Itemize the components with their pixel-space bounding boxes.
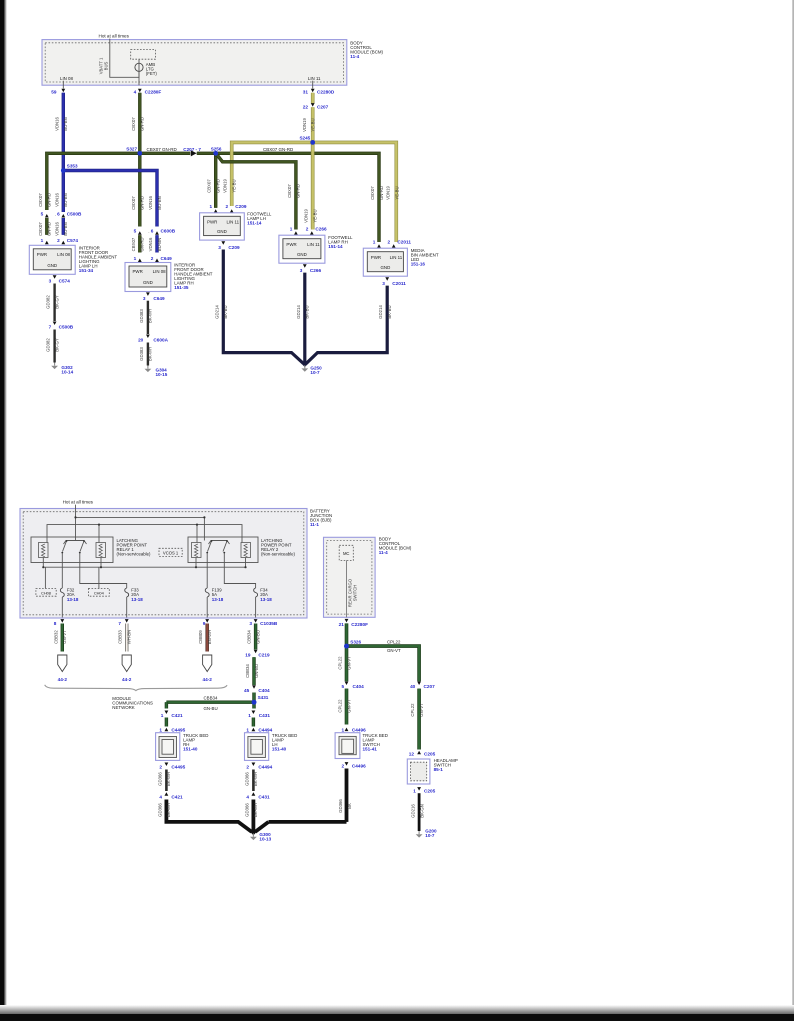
svg-text:2: 2: [151, 256, 154, 261]
svg-text:C431: C431: [258, 794, 270, 799]
svg-text:S327: S327: [126, 147, 137, 152]
svg-text:CBX07: CBX07: [38, 222, 43, 236]
svg-text:2: 2: [57, 238, 60, 243]
svg-text:1: 1: [413, 788, 416, 793]
svg-text:C2280D: C2280D: [317, 89, 335, 94]
svg-text:2: 2: [246, 764, 249, 769]
svg-text:BK-WH: BK-WH: [148, 347, 153, 361]
svg-text:CBX07 GN-RD: CBX07 GN-RD: [263, 147, 294, 152]
svg-text:GD383: GD383: [139, 309, 144, 323]
svg-text:C404: C404: [258, 688, 270, 693]
svg-text:5: 5: [41, 211, 44, 216]
svg-text:C649: C649: [153, 296, 165, 301]
svg-text:LIN 11: LIN 11: [307, 242, 320, 247]
svg-text:6: 6: [57, 211, 60, 216]
svg-text:C4495: C4495: [171, 764, 185, 769]
svg-text:2: 2: [159, 764, 162, 769]
svg-text:59: 59: [51, 89, 57, 94]
svg-text:PWR: PWR: [133, 269, 143, 274]
svg-text:C207: C207: [424, 684, 436, 689]
svg-text:BK-BU: BK-BU: [223, 305, 228, 318]
svg-text:10-7: 10-7: [310, 370, 320, 375]
svg-text:31: 31: [303, 89, 309, 94]
svg-text:GND: GND: [381, 265, 391, 270]
svg-text:PWR: PWR: [37, 252, 47, 257]
svg-text:11-4: 11-4: [379, 550, 388, 555]
svg-text:GND: GND: [47, 263, 57, 268]
svg-text:C2280F: C2280F: [351, 622, 368, 627]
svg-text:1: 1: [159, 727, 162, 732]
svg-text:CBB34: CBB34: [204, 695, 218, 700]
svg-text:13-18: 13-18: [212, 597, 224, 602]
svg-text:S245: S245: [299, 136, 310, 141]
svg-text:GN-RD: GN-RD: [47, 193, 52, 207]
svg-text:GD214: GD214: [378, 305, 383, 319]
svg-text:GN-VT: GN-VT: [346, 656, 351, 670]
svg-text:S431: S431: [258, 695, 269, 700]
svg-text:Hot at all times: Hot at all times: [99, 34, 130, 39]
svg-text:GD382: GD382: [46, 295, 51, 309]
svg-text:LIN 08: LIN 08: [153, 269, 166, 274]
svg-text:C431: C431: [259, 713, 271, 718]
svg-text:13-18: 13-18: [67, 597, 79, 602]
svg-text:BK-BU: BK-BU: [387, 305, 392, 318]
svg-text:GN-RD: GN-RD: [140, 117, 145, 131]
svg-text:YE-BU: YE-BU: [394, 186, 399, 199]
svg-text:CBX07: CBX07: [287, 184, 292, 198]
svg-text:C4496: C4496: [352, 727, 366, 732]
svg-text:GD214: GD214: [296, 305, 301, 319]
svg-text:VDN16: VDN16: [54, 116, 59, 130]
svg-text:C421: C421: [171, 713, 183, 718]
svg-text:151-14: 151-14: [247, 221, 262, 226]
svg-text:40: 40: [410, 684, 416, 689]
svg-text:1: 1: [246, 727, 249, 732]
svg-text:GN-RD: GN-RD: [296, 184, 301, 198]
svg-text:C404: C404: [353, 684, 365, 689]
svg-text:C207 - 7: C207 - 7: [183, 147, 201, 152]
svg-text:45: 45: [244, 688, 250, 693]
svg-text:VDN16: VDN16: [148, 237, 153, 251]
svg-text:BU-BN: BU-BN: [63, 222, 68, 235]
svg-text:2: 2: [341, 763, 344, 768]
svg-text:CBB34: CBB34: [245, 664, 250, 678]
svg-text:CBX07: CBX07: [131, 117, 136, 131]
svg-text:GN-RD: GN-RD: [47, 222, 52, 236]
svg-text:PWR: PWR: [286, 242, 296, 247]
svg-text:GND: GND: [217, 229, 227, 234]
svg-text:C219: C219: [258, 652, 270, 657]
svg-text:151-41: 151-41: [363, 747, 378, 752]
svg-text:C209: C209: [235, 204, 247, 209]
svg-text:YE-BU: YE-BU: [313, 209, 318, 222]
svg-text:CPL22: CPL22: [338, 699, 343, 713]
svg-text:2: 2: [387, 239, 390, 244]
svg-text:C574: C574: [67, 238, 79, 243]
svg-text:GN-RD: GN-RD: [216, 179, 221, 193]
svg-text:10-7: 10-7: [425, 833, 435, 838]
svg-text:VDN19: VDN19: [302, 117, 307, 131]
svg-text:Hot at all times: Hot at all times: [63, 500, 94, 505]
svg-text:CBB09: CBB09: [198, 630, 203, 644]
svg-text:21: 21: [339, 622, 345, 627]
svg-text:151-14: 151-14: [328, 244, 343, 249]
svg-text:VDN19: VDN19: [304, 208, 309, 222]
svg-text:GN-VT: GN-VT: [387, 648, 401, 653]
svg-text:GN-BU: GN-BU: [204, 706, 218, 711]
svg-text:85-1: 85-1: [434, 767, 444, 772]
svg-text:BK-GN: BK-GN: [419, 804, 424, 818]
svg-text:CBX07: CBX07: [131, 237, 136, 251]
svg-text:BU-BN: BU-BN: [157, 196, 162, 209]
svg-text:BK-GY: BK-GY: [54, 295, 59, 309]
svg-text:GD366: GD366: [157, 803, 162, 817]
svg-text:VDN16: VDN16: [54, 221, 59, 235]
svg-text:VDN16: VDN16: [148, 195, 153, 209]
svg-text:12: 12: [409, 751, 415, 756]
svg-text:7: 7: [49, 325, 52, 330]
svg-text:BU-BN: BU-BN: [63, 117, 68, 130]
svg-text:3: 3: [382, 281, 385, 286]
svg-text:C205: C205: [424, 788, 436, 793]
svg-text:3: 3: [300, 268, 303, 273]
svg-text:GN-RD: GN-RD: [379, 186, 384, 200]
svg-text:3: 3: [143, 296, 146, 301]
svg-text:C4496: C4496: [352, 763, 366, 768]
svg-text:10-13: 10-13: [259, 837, 271, 842]
svg-text:VCOS 1: VCOS 1: [163, 551, 179, 556]
svg-text:1: 1: [161, 713, 164, 718]
svg-text:1: 1: [209, 204, 212, 209]
svg-text:4: 4: [134, 89, 137, 94]
svg-text:C4494: C4494: [258, 764, 272, 769]
svg-text:C421: C421: [171, 794, 183, 799]
svg-text:(FET): (FET): [146, 71, 158, 76]
svg-text:20: 20: [138, 338, 144, 343]
svg-text:CBX07: CBX07: [38, 193, 43, 207]
svg-text:11-4: 11-4: [350, 54, 359, 59]
svg-text:10-15: 10-15: [156, 372, 168, 377]
svg-text:LIN 08: LIN 08: [60, 76, 73, 81]
svg-text:GN-VT: GN-VT: [62, 630, 67, 644]
svg-text:S353: S353: [67, 163, 78, 168]
svg-text:4: 4: [159, 794, 162, 799]
svg-text:19: 19: [245, 652, 251, 657]
svg-text:44-2: 44-2: [58, 677, 68, 682]
svg-text:C2011: C2011: [392, 281, 406, 286]
svg-text:BN-WH: BN-WH: [207, 630, 212, 645]
svg-text:BK-WH: BK-WH: [166, 772, 171, 786]
svg-text:6: 6: [151, 229, 154, 234]
svg-text:C574: C574: [59, 279, 71, 284]
svg-text:GD366: GD366: [157, 772, 162, 786]
svg-text:9: 9: [203, 621, 206, 626]
svg-text:5: 5: [341, 684, 344, 689]
svg-text:44-2: 44-2: [203, 677, 213, 682]
svg-text:BK-WH: BK-WH: [148, 309, 153, 323]
svg-text:VDN19: VDN19: [386, 185, 391, 199]
svg-text:C649: C649: [161, 256, 173, 261]
svg-text:GN-VT: GN-VT: [419, 703, 424, 717]
svg-text:8: 8: [54, 621, 57, 626]
svg-text:GND: GND: [143, 280, 153, 285]
svg-text:GD383: GD383: [139, 347, 144, 361]
svg-text:3: 3: [249, 621, 252, 626]
svg-text:C207: C207: [317, 104, 329, 109]
svg-text:S326: S326: [350, 639, 361, 644]
svg-text:2: 2: [306, 227, 309, 232]
svg-text:3: 3: [49, 279, 52, 284]
svg-text:GN-RD: GN-RD: [140, 196, 145, 210]
svg-text:44-2: 44-2: [122, 677, 132, 682]
svg-text:2: 2: [225, 204, 228, 209]
svg-text:C4495: C4495: [171, 727, 185, 732]
svg-text:C500B: C500B: [59, 325, 74, 330]
svg-text:CBB33: CBB33: [118, 630, 123, 644]
svg-text:VDN19: VDN19: [223, 178, 228, 192]
svg-text:GN-BU: GN-BU: [254, 664, 259, 678]
svg-text:7: 7: [118, 621, 121, 626]
svg-text:YE-BU: YE-BU: [311, 118, 316, 131]
svg-text:5: 5: [134, 229, 137, 234]
svg-text:MC: MC: [343, 551, 350, 556]
svg-text:1: 1: [373, 239, 376, 244]
svg-text:(Non-serviceable): (Non-serviceable): [117, 552, 151, 557]
svg-text:VDN16: VDN16: [54, 192, 59, 206]
svg-text:11-1: 11-1: [310, 522, 319, 527]
svg-text:CBX07: CBX07: [207, 179, 212, 193]
svg-text:10-14: 10-14: [61, 369, 73, 374]
svg-text:LIN 11: LIN 11: [390, 255, 403, 260]
svg-text:GD382: GD382: [46, 338, 51, 352]
svg-text:C209: C209: [228, 245, 240, 250]
svg-text:BK-WH: BK-WH: [253, 772, 258, 786]
svg-text:C266: C266: [310, 268, 322, 273]
svg-text:GN-VT: GN-VT: [346, 699, 351, 713]
svg-text:22: 22: [303, 104, 309, 109]
svg-text:151-16: 151-16: [411, 262, 426, 267]
svg-text:BUS: BUS: [103, 61, 108, 70]
svg-text:GD366: GD366: [338, 799, 343, 813]
svg-text:C205: C205: [424, 751, 436, 756]
svg-text:C4494: C4494: [258, 727, 272, 732]
svg-text:GD366: GD366: [244, 803, 249, 817]
svg-text:LIN 08: LIN 08: [57, 252, 70, 257]
svg-text:GD216: GD216: [411, 804, 416, 818]
svg-text:C500B: C500B: [67, 211, 82, 216]
svg-text:CH08: CH08: [41, 590, 51, 595]
svg-text:151-34: 151-34: [79, 268, 94, 273]
svg-text:151-40: 151-40: [272, 747, 287, 752]
svg-text:BK-GY: BK-GY: [54, 338, 59, 352]
svg-text:C2280F: C2280F: [145, 89, 162, 94]
svg-text:GN-BU: GN-BU: [255, 630, 260, 644]
svg-text:1: 1: [41, 238, 44, 243]
svg-text:BK: BK: [347, 803, 352, 809]
svg-text:CBX07 GN-RD: CBX07 GN-RD: [147, 147, 178, 152]
svg-text:151-40: 151-40: [183, 747, 198, 752]
svg-text:BU-BN: BU-BN: [157, 238, 162, 251]
svg-text:WH-BN: WH-BN: [127, 630, 132, 645]
svg-text:3: 3: [218, 245, 221, 250]
svg-text:C266: C266: [315, 227, 327, 232]
svg-text:C600A: C600A: [153, 338, 168, 343]
svg-text:S256: S256: [211, 147, 222, 152]
svg-text:YE-BU: YE-BU: [232, 179, 237, 192]
svg-text:151-35: 151-35: [174, 285, 189, 290]
svg-text:1: 1: [248, 713, 251, 718]
svg-text:CPL22: CPL22: [338, 656, 343, 670]
svg-text:GD366: GD366: [244, 772, 249, 786]
svg-text:CPL22: CPL22: [410, 703, 415, 717]
svg-text:CBB34: CBB34: [247, 630, 252, 644]
svg-text:CH04: CH04: [94, 590, 105, 595]
svg-text:(Non-serviceable): (Non-serviceable): [261, 552, 295, 557]
svg-text:NETWORK: NETWORK: [112, 705, 135, 710]
svg-text:BU-BN: BU-BN: [63, 193, 68, 206]
svg-text:GD214: GD214: [214, 305, 219, 319]
svg-text:BK-WH: BK-WH: [253, 803, 258, 817]
svg-text:CPL22: CPL22: [387, 640, 401, 645]
svg-text:1: 1: [134, 256, 137, 261]
svg-text:CBX07: CBX07: [370, 186, 375, 200]
svg-text:BK-BU: BK-BU: [305, 305, 310, 318]
svg-text:C600B: C600B: [161, 229, 176, 234]
svg-text:C2011: C2011: [397, 239, 411, 244]
svg-text:C1035B: C1035B: [260, 621, 278, 626]
svg-text:PWR: PWR: [207, 220, 217, 225]
svg-text:SWITCH: SWITCH: [353, 585, 358, 602]
svg-text:LIN 11: LIN 11: [226, 220, 239, 225]
svg-text:1: 1: [341, 727, 344, 732]
svg-text:GN-RD: GN-RD: [140, 237, 145, 251]
svg-text:13-18: 13-18: [260, 597, 272, 602]
svg-text:BK-WH: BK-WH: [166, 803, 171, 817]
svg-text:PWR: PWR: [371, 255, 381, 260]
svg-text:13-18: 13-18: [131, 597, 143, 602]
svg-text:CBX07: CBX07: [131, 196, 136, 210]
svg-text:CBB32: CBB32: [53, 630, 58, 644]
svg-text:GND: GND: [297, 252, 307, 257]
svg-text:LIN 11: LIN 11: [308, 76, 321, 81]
svg-text:1: 1: [290, 227, 293, 232]
svg-text:4: 4: [246, 794, 249, 799]
